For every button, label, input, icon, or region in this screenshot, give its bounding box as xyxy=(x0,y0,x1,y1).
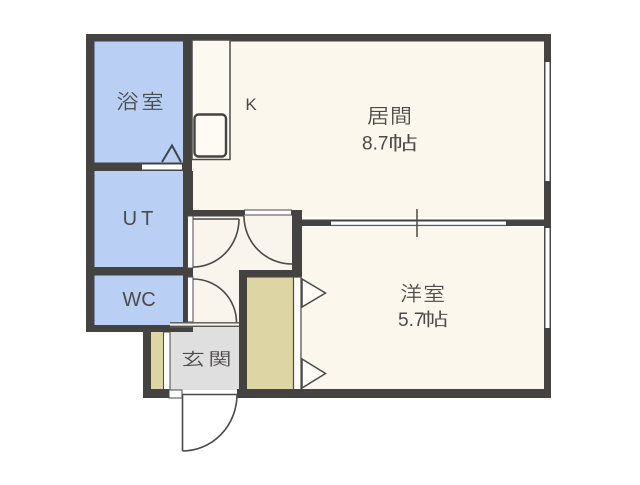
svg-text:UT: UT xyxy=(123,208,158,230)
svg-text:8.7: 8.7 xyxy=(362,133,388,154)
svg-text:K: K xyxy=(245,95,257,114)
svg-text:5.7: 5.7 xyxy=(398,310,424,331)
svg-text:WC: WC xyxy=(122,289,155,311)
